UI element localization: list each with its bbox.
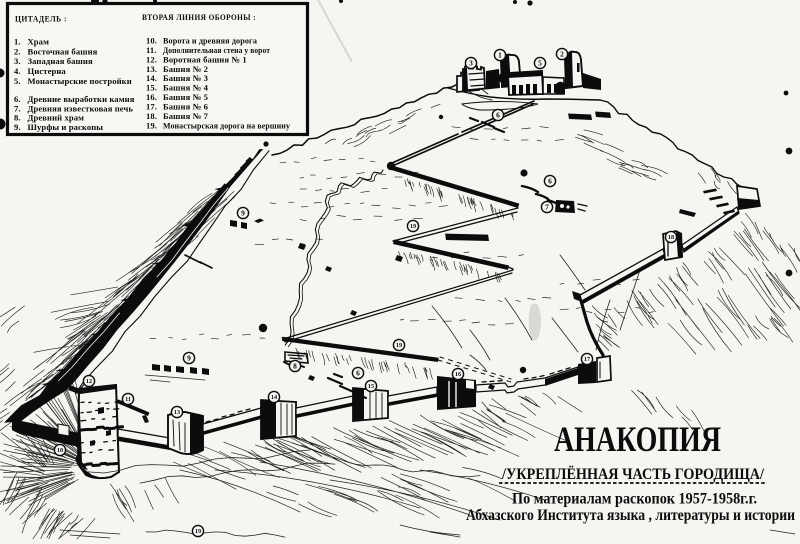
svg-text:18.: 18. <box>146 111 157 121</box>
svg-text:12: 12 <box>86 378 92 385</box>
svg-text:Восточная башня: Восточная башня <box>28 46 98 56</box>
svg-text:Храм: Храм <box>28 37 50 47</box>
svg-text:4.: 4. <box>14 66 21 76</box>
svg-text:АНАКОПИЯ: АНАКОПИЯ <box>554 419 721 459</box>
svg-text:2.: 2. <box>14 46 21 56</box>
svg-text:1: 1 <box>498 51 502 60</box>
svg-text:9.: 9. <box>14 122 21 132</box>
svg-text:13: 13 <box>174 409 180 416</box>
svg-text:3.: 3. <box>14 56 21 66</box>
svg-text:19.: 19. <box>146 120 157 130</box>
svg-text:5: 5 <box>538 59 542 68</box>
svg-text:6: 6 <box>496 111 500 120</box>
svg-text:Башня № 7: Башня № 7 <box>163 111 209 121</box>
svg-text:17: 17 <box>584 356 590 363</box>
svg-text:3: 3 <box>469 59 473 68</box>
svg-text:19: 19 <box>410 223 416 230</box>
svg-text:2: 2 <box>560 50 564 59</box>
svg-text:19: 19 <box>195 528 201 535</box>
svg-text:11: 11 <box>125 396 131 403</box>
svg-text:8: 8 <box>293 362 297 371</box>
svg-text:По материалам раскопок 1957-: По материалам раскопок 1957-1958г.г. <box>512 491 757 508</box>
svg-text:9: 9 <box>187 354 191 363</box>
svg-text:7: 7 <box>545 203 549 212</box>
svg-text:14.: 14. <box>146 73 157 83</box>
svg-text:6: 6 <box>548 177 552 186</box>
svg-text:11.: 11. <box>146 45 157 55</box>
svg-text:5.: 5. <box>14 76 21 86</box>
svg-text:9: 9 <box>241 209 245 218</box>
svg-text:Монастырские постройки: Монастырские постройки <box>28 76 132 86</box>
svg-text:6: 6 <box>356 369 360 378</box>
svg-text:ВТОРАЯ ЛИНИЯ ОБОРОНЫ :: ВТОРАЯ ЛИНИЯ ОБОРОНЫ : <box>142 12 256 22</box>
svg-text:19: 19 <box>396 342 402 349</box>
svg-text:1.: 1. <box>14 37 21 47</box>
svg-text:4: 4 <box>501 75 505 83</box>
svg-text:ЦИТАДЕЛЬ :: ЦИТАДЕЛЬ : <box>15 14 67 24</box>
svg-text:16: 16 <box>455 371 461 378</box>
svg-text:15: 15 <box>368 383 374 390</box>
svg-text:14: 14 <box>271 394 277 401</box>
svg-text:Шурфы и раскопы: Шурфы и раскопы <box>28 122 104 132</box>
svg-text:Абхазского Института языка , л: Абхазского Института языка , литературы … <box>466 507 795 524</box>
svg-text:Цистерна: Цистерна <box>28 66 67 76</box>
svg-text:Монастырская дорога на верш: Монастырская дорога на вершину <box>163 120 291 130</box>
svg-text:Дополнительная стена у ворот: Дополнительная стена у ворот <box>163 45 271 55</box>
svg-text:18: 18 <box>668 234 674 241</box>
svg-text:Западная башня: Западная башня <box>28 56 93 66</box>
svg-text:/УКРЕПЛЁННАЯ ЧАСТЬ ГОРОДИЩА/: /УКРЕПЛЁННАЯ ЧАСТЬ ГОРОДИЩА/ <box>501 465 764 483</box>
svg-text:Башня № 3: Башня № 3 <box>163 73 208 83</box>
svg-text:10: 10 <box>57 447 63 454</box>
